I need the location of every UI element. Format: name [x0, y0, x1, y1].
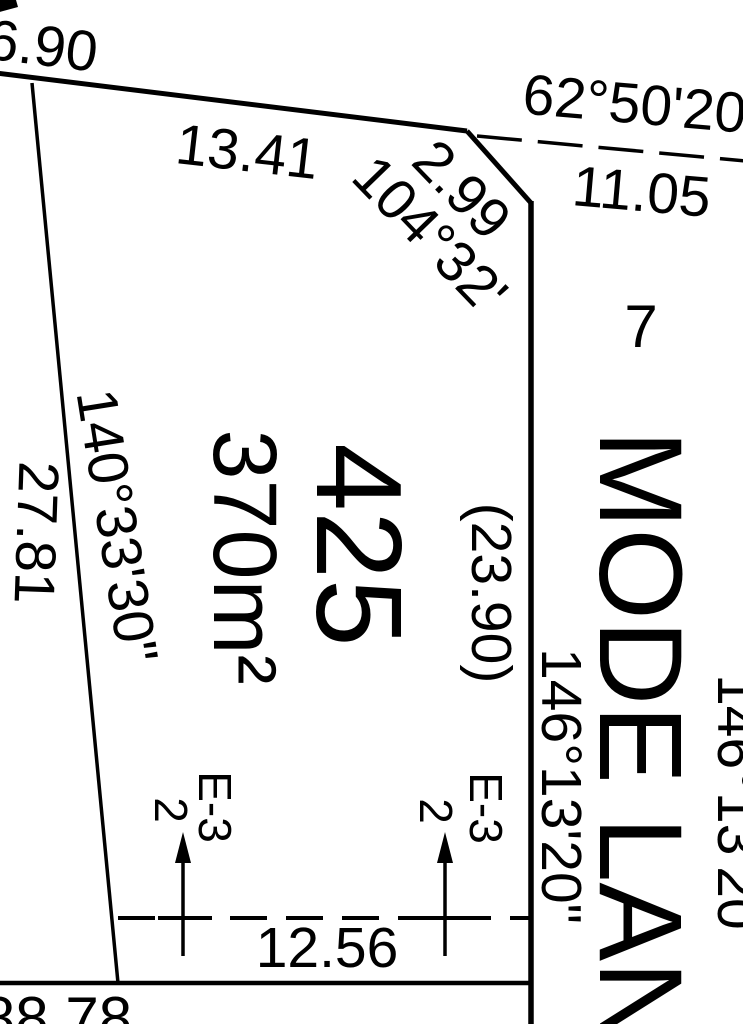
easement-arrow-1-head [175, 832, 191, 863]
road-far-side-bearing: 146°13'20" [705, 674, 743, 950]
road-extension-distance: 11.05 [570, 154, 713, 230]
lot-number: 425 [291, 443, 427, 647]
east-boundary-total-distance: (23.90) [459, 503, 523, 684]
front-boundary-distance: 13.41 [173, 112, 322, 192]
easement-arrow-2-head [437, 832, 453, 863]
west-boundary-distance: 27.81 [2, 460, 71, 605]
easement-width-1: 2 [145, 797, 197, 823]
adjacent-lot-number: 7 [624, 293, 657, 360]
easement-code-2: E-3 [460, 772, 512, 844]
survey-plan-page: 6.90 13.41 62°50'20" 11.05 2.99 104°32' … [0, 0, 743, 1024]
easement-segment-distance: 12.56 [256, 916, 399, 980]
lot-area: 370m² [194, 429, 294, 684]
plan-drawing: 6.90 13.41 62°50'20" 11.05 2.99 104°32' … [0, 0, 743, 1024]
top-left-segment-distance: 6.90 [0, 8, 101, 85]
street-name: MODE LANE [574, 430, 706, 1024]
easement-width-2: 2 [410, 798, 462, 824]
west-boundary-bearing: 140°33'30" [64, 385, 170, 667]
bottom-boundary-distance: 88.78 [0, 985, 132, 1024]
front-boundary-bearing: 62°50'20" [520, 63, 743, 148]
